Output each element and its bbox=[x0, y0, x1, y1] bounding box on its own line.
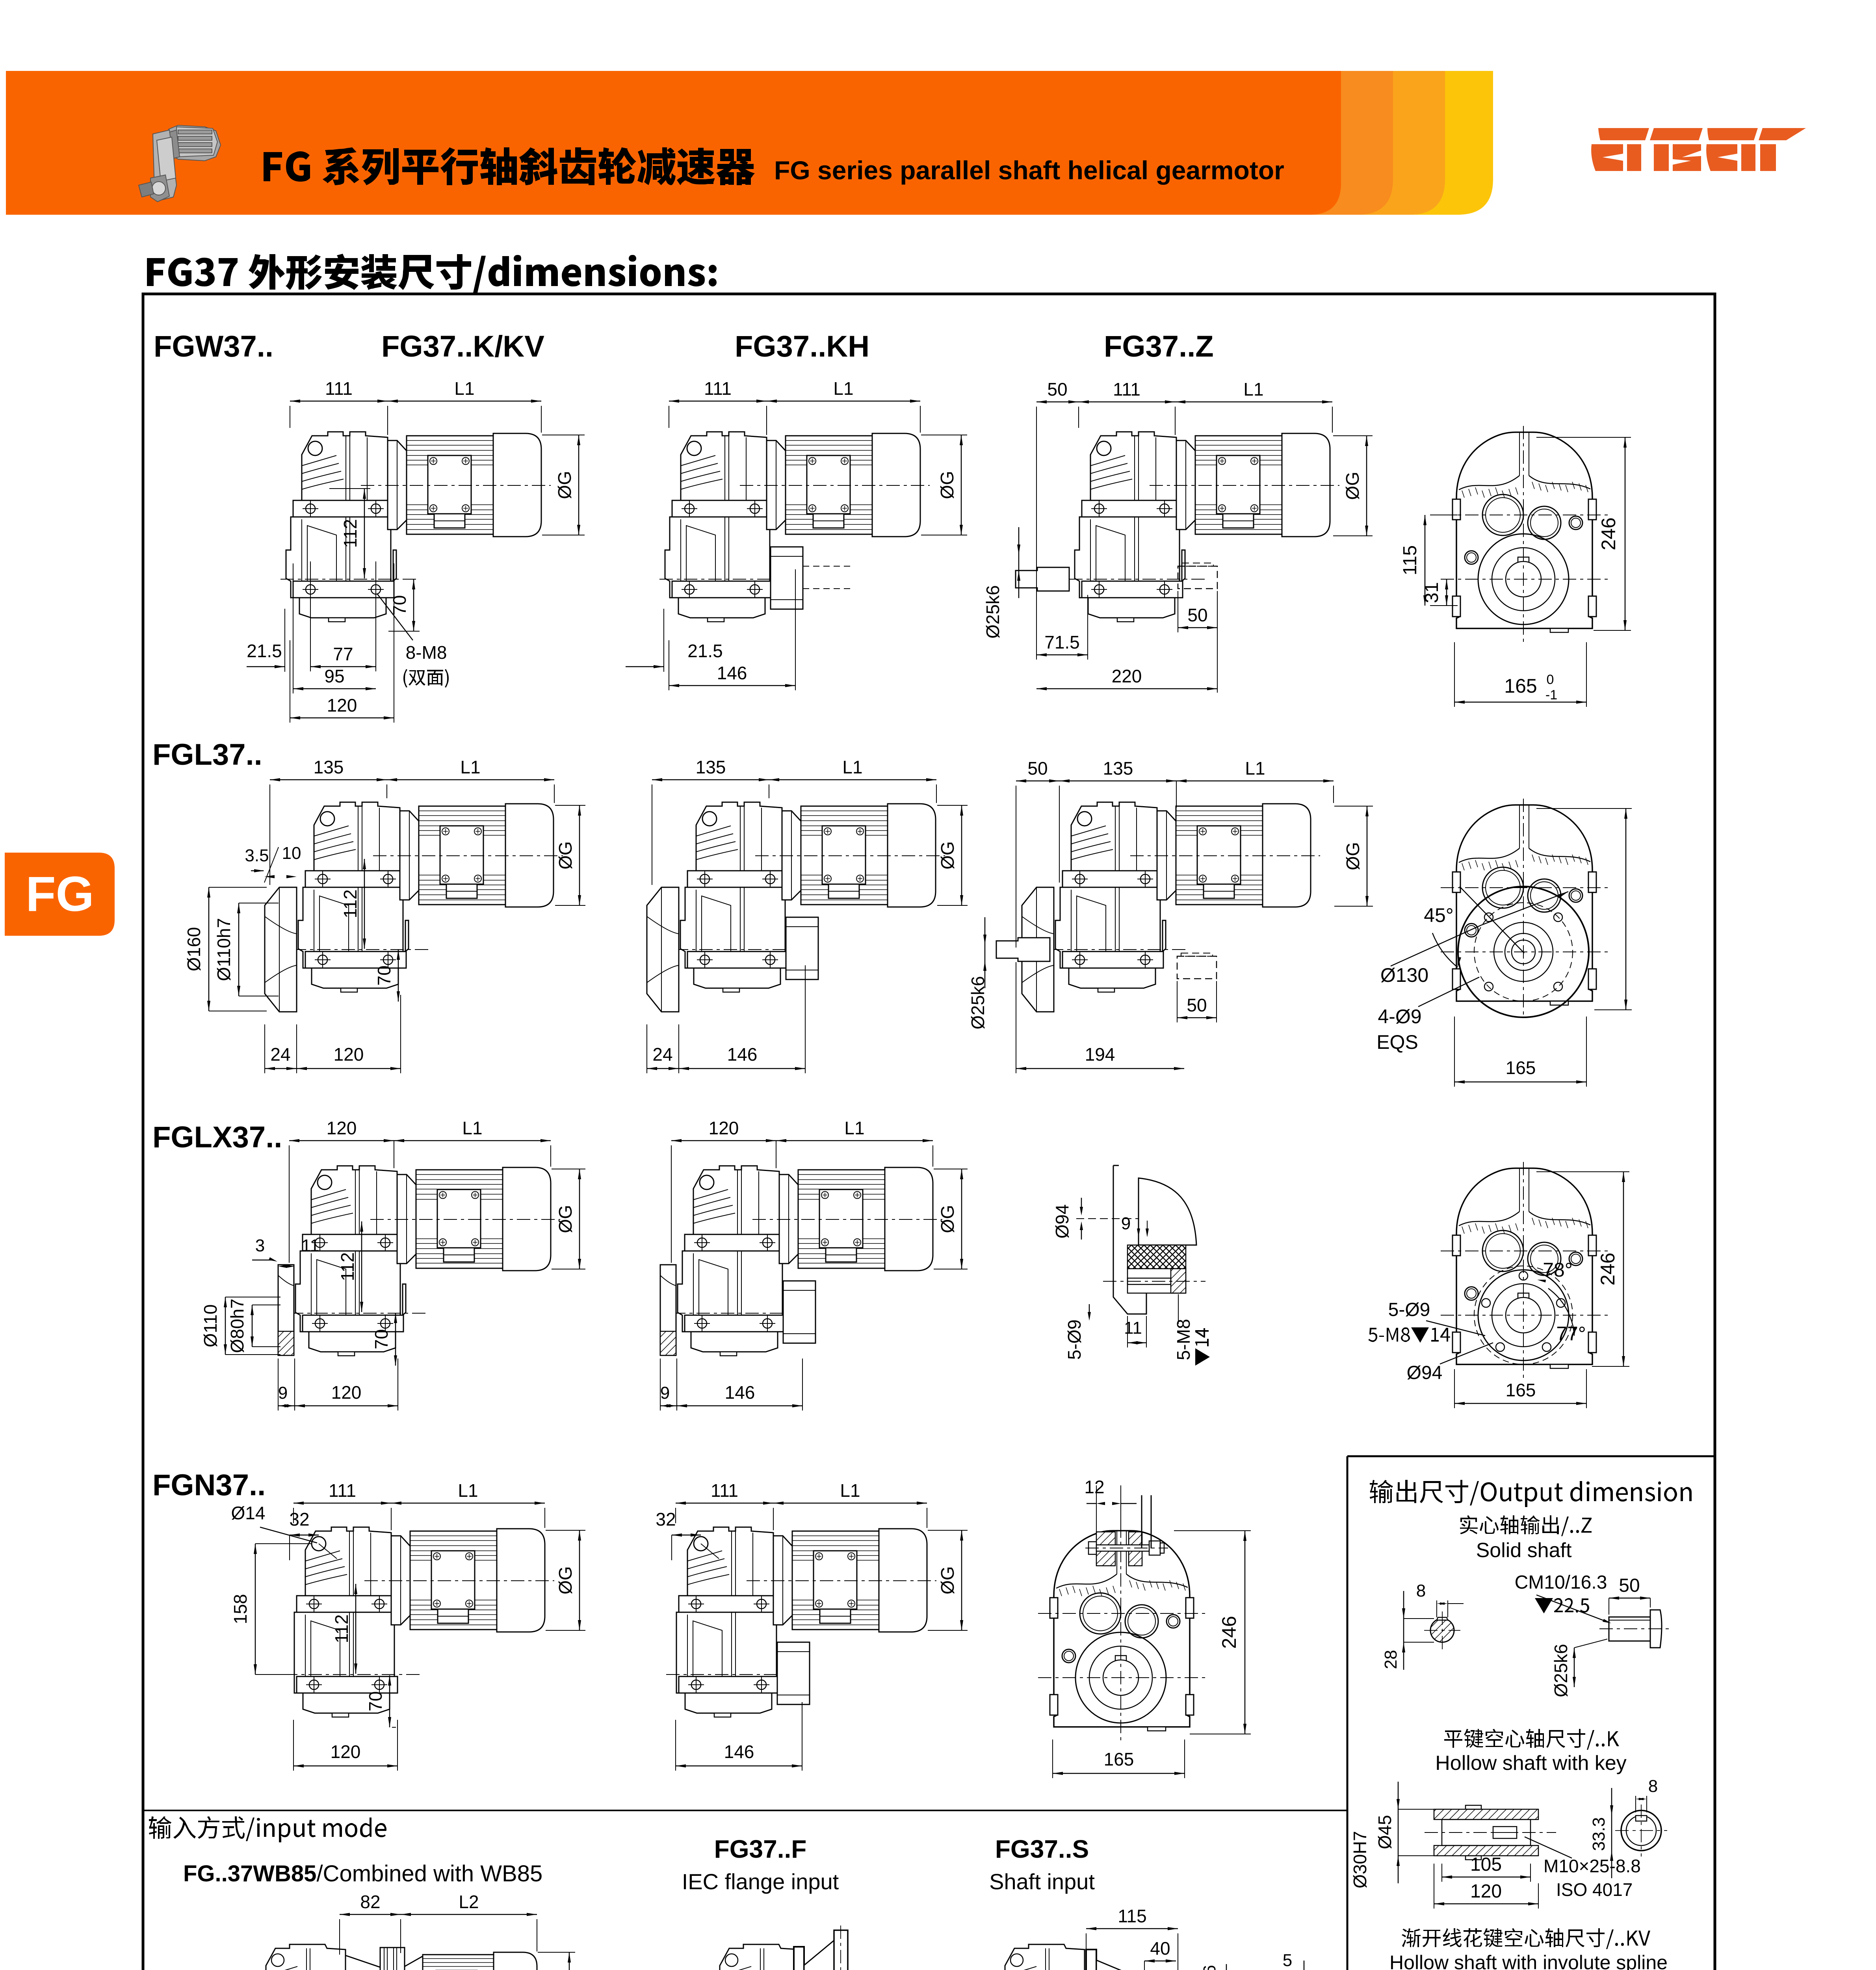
svg-text:5: 5 bbox=[1283, 1951, 1292, 1970]
svg-text:L1: L1 bbox=[458, 1480, 478, 1501]
svg-text:L1: L1 bbox=[844, 1118, 864, 1138]
svg-text:0: 0 bbox=[1547, 672, 1554, 687]
svg-text:112: 112 bbox=[340, 519, 360, 548]
svg-text:111: 111 bbox=[325, 378, 353, 399]
svg-text:FGL37..: FGL37.. bbox=[152, 738, 262, 771]
svg-text:120: 120 bbox=[1470, 1881, 1502, 1902]
svg-text:246: 246 bbox=[1218, 1616, 1240, 1648]
svg-text:111: 111 bbox=[1113, 379, 1140, 400]
svg-text:135: 135 bbox=[1103, 758, 1133, 779]
svg-text:21.5: 21.5 bbox=[247, 641, 282, 661]
svg-text:50: 50 bbox=[1187, 995, 1207, 1015]
svg-text:135: 135 bbox=[696, 757, 726, 777]
svg-text:Ø30H7: Ø30H7 bbox=[1350, 1831, 1370, 1888]
svg-text:FG37..K/KV: FG37..K/KV bbox=[381, 330, 544, 363]
svg-text:194: 194 bbox=[1085, 1044, 1115, 1065]
svg-text:115: 115 bbox=[1118, 1906, 1146, 1926]
svg-text:-1: -1 bbox=[1545, 688, 1557, 703]
svg-text:112: 112 bbox=[340, 889, 360, 918]
svg-text:158: 158 bbox=[230, 1594, 251, 1624]
svg-text:Ø160: Ø160 bbox=[184, 927, 204, 972]
svg-text:ØG: ØG bbox=[1343, 842, 1363, 870]
svg-text:82: 82 bbox=[360, 1892, 380, 1912]
svg-text:FGLX37..: FGLX37.. bbox=[152, 1121, 282, 1154]
svg-text:FG series parallel shaft helic: FG series parallel shaft helical gearmot… bbox=[774, 156, 1284, 185]
svg-text:28: 28 bbox=[1381, 1650, 1400, 1669]
svg-text:24: 24 bbox=[652, 1044, 672, 1065]
svg-text:L1: L1 bbox=[842, 757, 862, 777]
svg-text:L1: L1 bbox=[462, 1118, 482, 1138]
svg-text:9: 9 bbox=[278, 1383, 288, 1403]
svg-text:8: 8 bbox=[1648, 1777, 1658, 1796]
svg-text:L1: L1 bbox=[840, 1480, 860, 1501]
svg-text:165: 165 bbox=[1506, 1380, 1536, 1400]
svg-text:Ø25k6: Ø25k6 bbox=[1551, 1644, 1571, 1697]
svg-text:220: 220 bbox=[1112, 666, 1142, 686]
svg-text:11: 11 bbox=[1124, 1318, 1142, 1338]
svg-text:9: 9 bbox=[1121, 1214, 1131, 1233]
svg-text:146: 146 bbox=[724, 1741, 754, 1762]
svg-text:111: 111 bbox=[329, 1480, 356, 1501]
svg-text:ØG: ØG bbox=[937, 1205, 958, 1233]
svg-text:5-M8: 5-M8 bbox=[1173, 1319, 1194, 1360]
svg-text:Shaft input: Shaft input bbox=[989, 1869, 1095, 1894]
svg-text:32: 32 bbox=[656, 1509, 676, 1530]
svg-text:95: 95 bbox=[324, 666, 344, 686]
svg-text:33.3: 33.3 bbox=[1589, 1817, 1609, 1851]
svg-text:ØG: ØG bbox=[554, 471, 575, 499]
svg-text:146: 146 bbox=[717, 663, 747, 683]
svg-text:FG37..F: FG37..F bbox=[714, 1835, 807, 1863]
svg-text:ØG: ØG bbox=[937, 841, 958, 870]
svg-text:40: 40 bbox=[1150, 1938, 1170, 1959]
svg-text:246: 246 bbox=[1597, 517, 1620, 550]
svg-text:3.5: 3.5 bbox=[245, 846, 269, 865]
svg-text:112: 112 bbox=[337, 1252, 358, 1281]
svg-text:Hollow shaft with involute spl: Hollow shaft with involute spline bbox=[1389, 1951, 1668, 1970]
svg-text:165: 165 bbox=[1504, 675, 1537, 697]
svg-text:L1: L1 bbox=[1245, 758, 1265, 779]
svg-text:Ø94: Ø94 bbox=[1407, 1362, 1443, 1383]
svg-text:L1: L1 bbox=[1243, 379, 1263, 400]
svg-text:120: 120 bbox=[334, 1044, 364, 1065]
svg-text:31: 31 bbox=[1421, 582, 1442, 603]
svg-text:FG37..KH: FG37..KH bbox=[735, 330, 869, 363]
svg-text:111: 111 bbox=[711, 1480, 738, 1501]
svg-text:ØG: ØG bbox=[1342, 472, 1363, 500]
svg-text:Ø110h7: Ø110h7 bbox=[214, 918, 234, 981]
svg-text:ØG: ØG bbox=[555, 1566, 576, 1595]
svg-text:ISO 4017: ISO 4017 bbox=[1556, 1879, 1633, 1900]
svg-text:5-Ø9: 5-Ø9 bbox=[1388, 1299, 1430, 1320]
svg-text:24: 24 bbox=[270, 1044, 290, 1065]
svg-text:105: 105 bbox=[1470, 1854, 1502, 1875]
svg-text:M10×25-8.8: M10×25-8.8 bbox=[1544, 1856, 1641, 1876]
svg-text:77°: 77° bbox=[1556, 1323, 1586, 1345]
svg-text:11: 11 bbox=[301, 1236, 319, 1255]
svg-text:Ø16k6: Ø16k6 bbox=[1200, 1965, 1219, 1970]
svg-text:Ø14: Ø14 bbox=[231, 1503, 266, 1523]
svg-text:9: 9 bbox=[660, 1383, 670, 1403]
svg-text:CM10/16.3: CM10/16.3 bbox=[1515, 1572, 1607, 1593]
svg-text:50: 50 bbox=[1027, 758, 1048, 779]
svg-text:L1: L1 bbox=[460, 757, 480, 777]
svg-text:Ø110: Ø110 bbox=[200, 1304, 221, 1347]
svg-text:Ø130: Ø130 bbox=[1380, 964, 1428, 986]
svg-text:120: 120 bbox=[709, 1118, 739, 1138]
svg-text:5-Ø9: 5-Ø9 bbox=[1064, 1320, 1085, 1360]
svg-text:115: 115 bbox=[1400, 545, 1421, 576]
svg-text:50: 50 bbox=[1619, 1575, 1640, 1596]
svg-text:EQS: EQS bbox=[1376, 1031, 1418, 1053]
svg-text:50: 50 bbox=[1047, 379, 1067, 400]
svg-text:ØG: ØG bbox=[937, 471, 957, 499]
svg-text:FG: FG bbox=[26, 867, 94, 922]
svg-text:21.5: 21.5 bbox=[687, 641, 723, 661]
svg-text:10: 10 bbox=[282, 844, 301, 863]
svg-text:FG37..S: FG37..S bbox=[995, 1835, 1089, 1863]
svg-text:ØG: ØG bbox=[555, 841, 576, 870]
svg-text:IEC flange input: IEC flange input bbox=[682, 1869, 839, 1894]
svg-text:146: 146 bbox=[727, 1044, 758, 1065]
svg-text:L2: L2 bbox=[459, 1892, 479, 1912]
svg-text:Ø80h7: Ø80h7 bbox=[227, 1299, 247, 1353]
svg-text:78°: 78° bbox=[1543, 1259, 1573, 1281]
svg-text:8-M8: 8-M8 bbox=[406, 642, 447, 663]
svg-text:Solid shaft: Solid shaft bbox=[1476, 1539, 1572, 1562]
svg-text:112: 112 bbox=[331, 1614, 352, 1643]
svg-text:Ø25k6: Ø25k6 bbox=[968, 976, 988, 1030]
svg-text:FGN37..: FGN37.. bbox=[152, 1468, 266, 1502]
svg-text:70: 70 bbox=[389, 595, 410, 615]
svg-text:FGW37..: FGW37.. bbox=[154, 330, 273, 363]
svg-text:50: 50 bbox=[1187, 605, 1207, 625]
svg-text:Hollow shaft with key: Hollow shaft with key bbox=[1435, 1752, 1627, 1775]
svg-text:70: 70 bbox=[371, 1329, 392, 1349]
svg-text:120: 120 bbox=[331, 1741, 361, 1762]
svg-text:ØG: ØG bbox=[937, 1566, 958, 1595]
svg-text:FG37..Z: FG37..Z bbox=[1104, 330, 1214, 363]
svg-text:Ø94: Ø94 bbox=[1052, 1204, 1072, 1239]
svg-text:246: 246 bbox=[1597, 1253, 1619, 1285]
svg-text:4-Ø9: 4-Ø9 bbox=[1378, 1005, 1421, 1028]
svg-text:ØG: ØG bbox=[555, 1205, 576, 1233]
svg-text:L1: L1 bbox=[454, 378, 474, 399]
svg-text:32: 32 bbox=[289, 1509, 309, 1530]
svg-text:77: 77 bbox=[333, 644, 353, 664]
svg-text:70: 70 bbox=[374, 965, 394, 985]
svg-text:FG..37WB85/Combined with WB85: FG..37WB85/Combined with WB85 bbox=[183, 1861, 542, 1886]
svg-text:120: 120 bbox=[327, 695, 357, 716]
svg-text:8: 8 bbox=[1416, 1581, 1426, 1600]
svg-text:3: 3 bbox=[255, 1236, 265, 1255]
svg-text:L1: L1 bbox=[833, 378, 853, 399]
svg-text:Ø45: Ø45 bbox=[1374, 1815, 1395, 1849]
svg-text:111: 111 bbox=[704, 378, 732, 399]
svg-text:135: 135 bbox=[314, 757, 344, 777]
svg-text:165: 165 bbox=[1104, 1749, 1134, 1769]
svg-text:45°: 45° bbox=[1424, 904, 1454, 926]
svg-text:120: 120 bbox=[327, 1118, 357, 1138]
svg-text:165: 165 bbox=[1506, 1057, 1536, 1078]
svg-text:71.5: 71.5 bbox=[1044, 632, 1080, 652]
svg-text:146: 146 bbox=[725, 1382, 755, 1403]
svg-text:120: 120 bbox=[331, 1382, 362, 1403]
svg-text:12: 12 bbox=[1084, 1477, 1104, 1497]
svg-text:70: 70 bbox=[365, 1691, 386, 1711]
svg-text:Ø25k6: Ø25k6 bbox=[983, 585, 1003, 639]
